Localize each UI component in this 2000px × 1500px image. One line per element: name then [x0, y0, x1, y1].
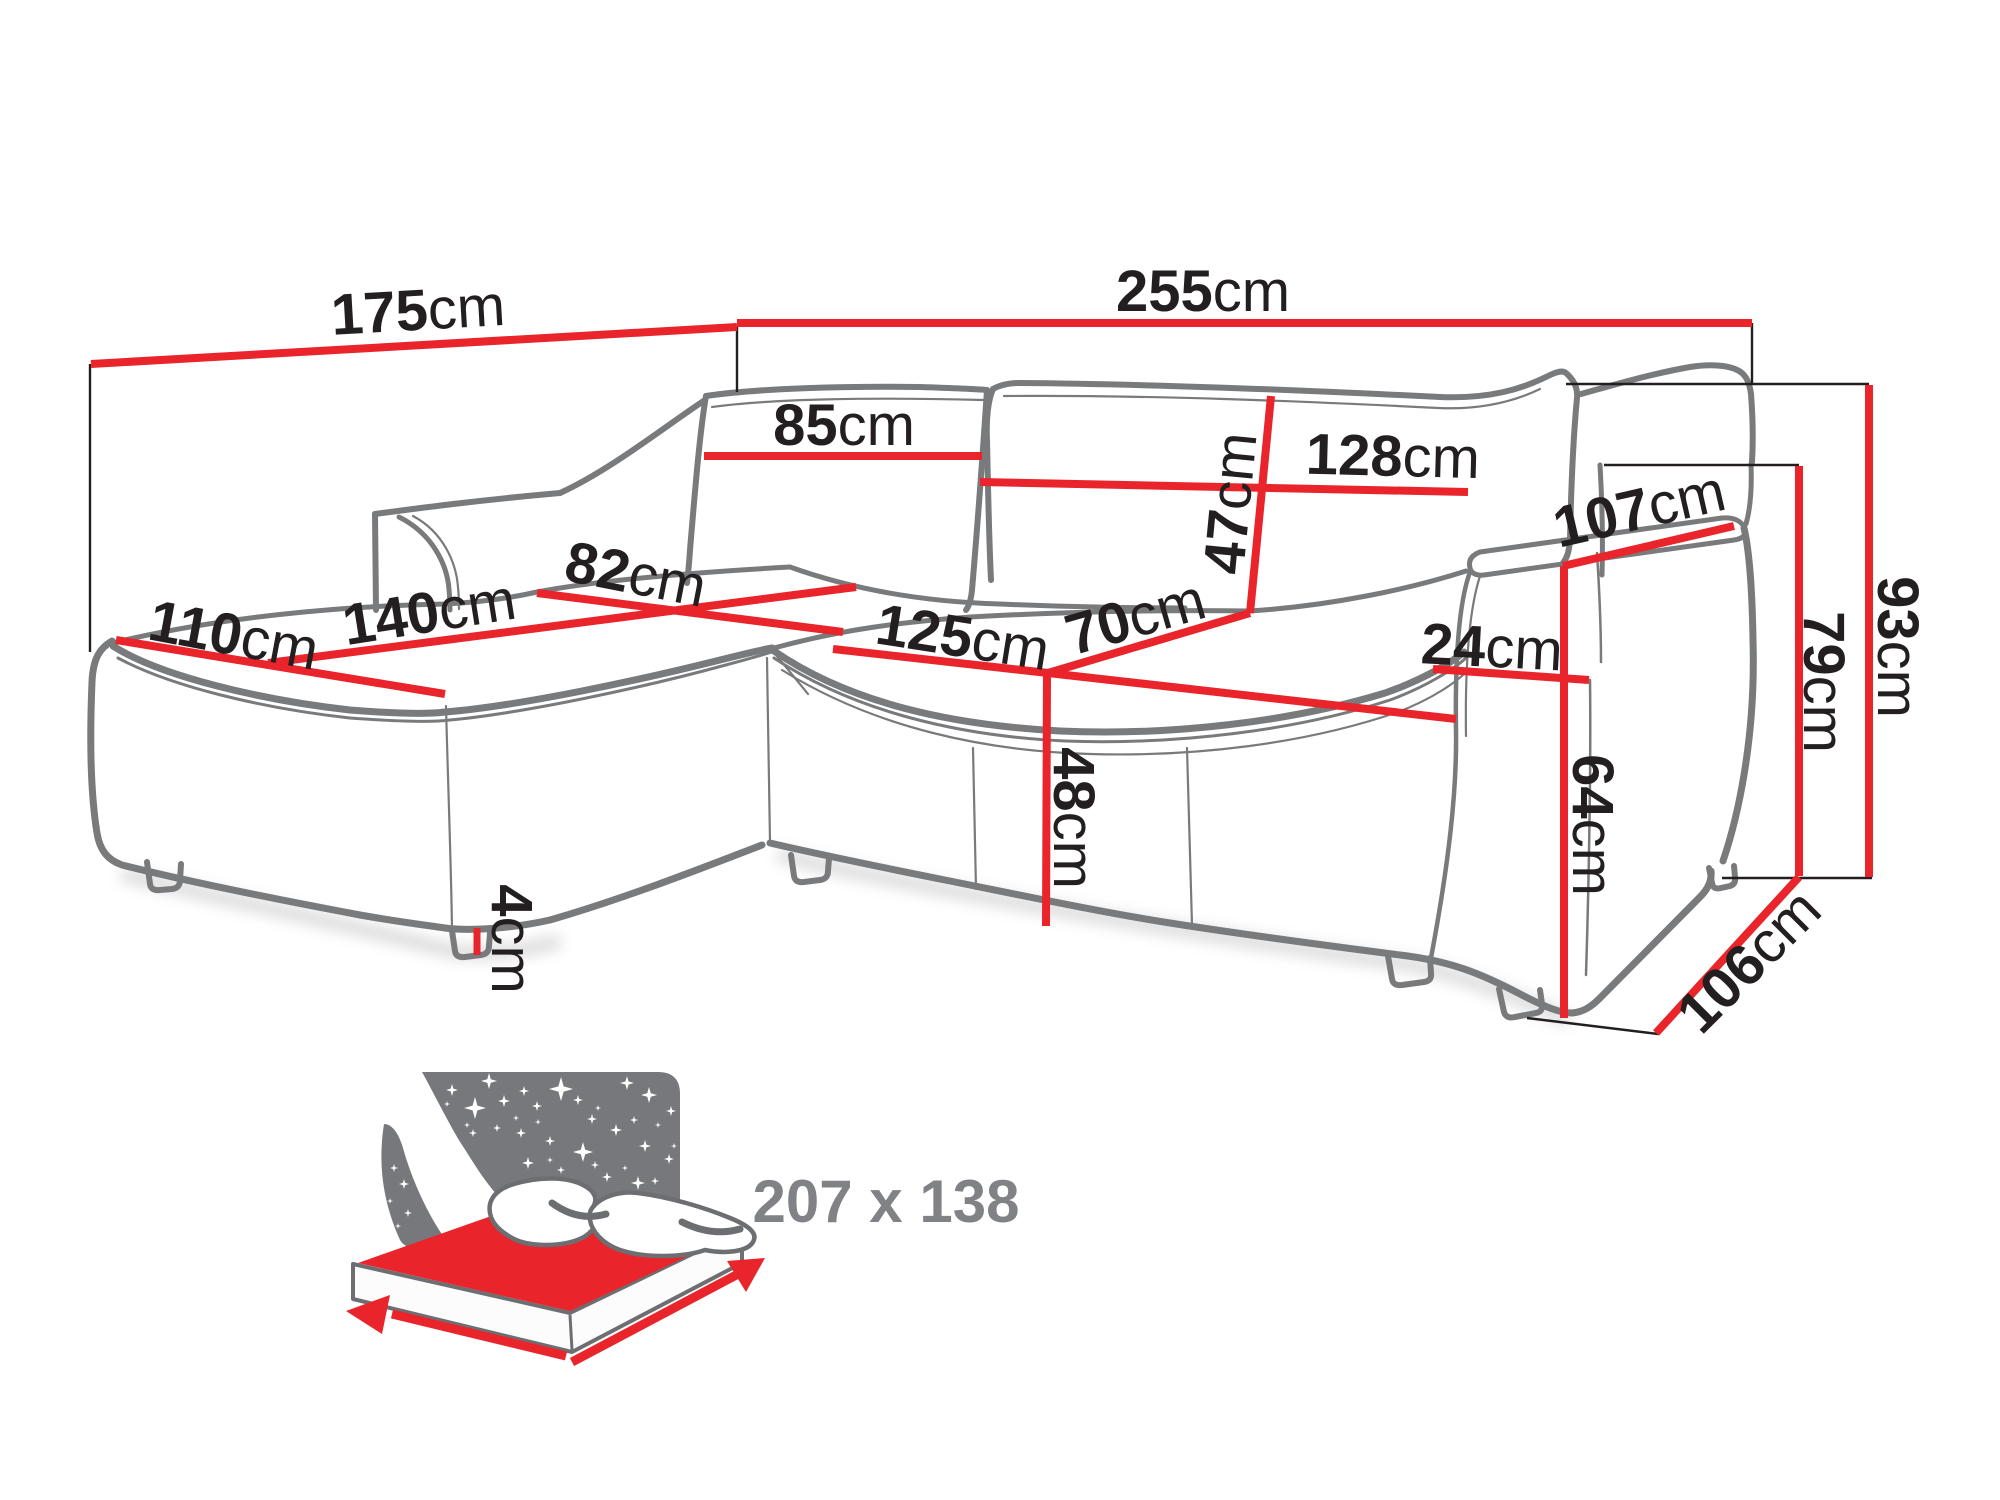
svg-text:24cm: 24cm: [1419, 611, 1564, 683]
svg-text:175cm: 175cm: [329, 273, 507, 348]
svg-text:4cm: 4cm: [479, 884, 544, 994]
svg-text:255cm: 255cm: [1116, 259, 1290, 324]
svg-text:64cm: 64cm: [1560, 754, 1625, 896]
svg-text:93cm: 93cm: [1865, 576, 1930, 718]
svg-text:48cm: 48cm: [1041, 747, 1106, 889]
svg-text:128cm: 128cm: [1305, 422, 1481, 492]
svg-text:85cm: 85cm: [773, 393, 915, 458]
svg-text:207 x 138: 207 x 138: [753, 1168, 1020, 1235]
svg-text:47cm: 47cm: [1191, 429, 1269, 576]
svg-text:79cm: 79cm: [1791, 611, 1856, 753]
